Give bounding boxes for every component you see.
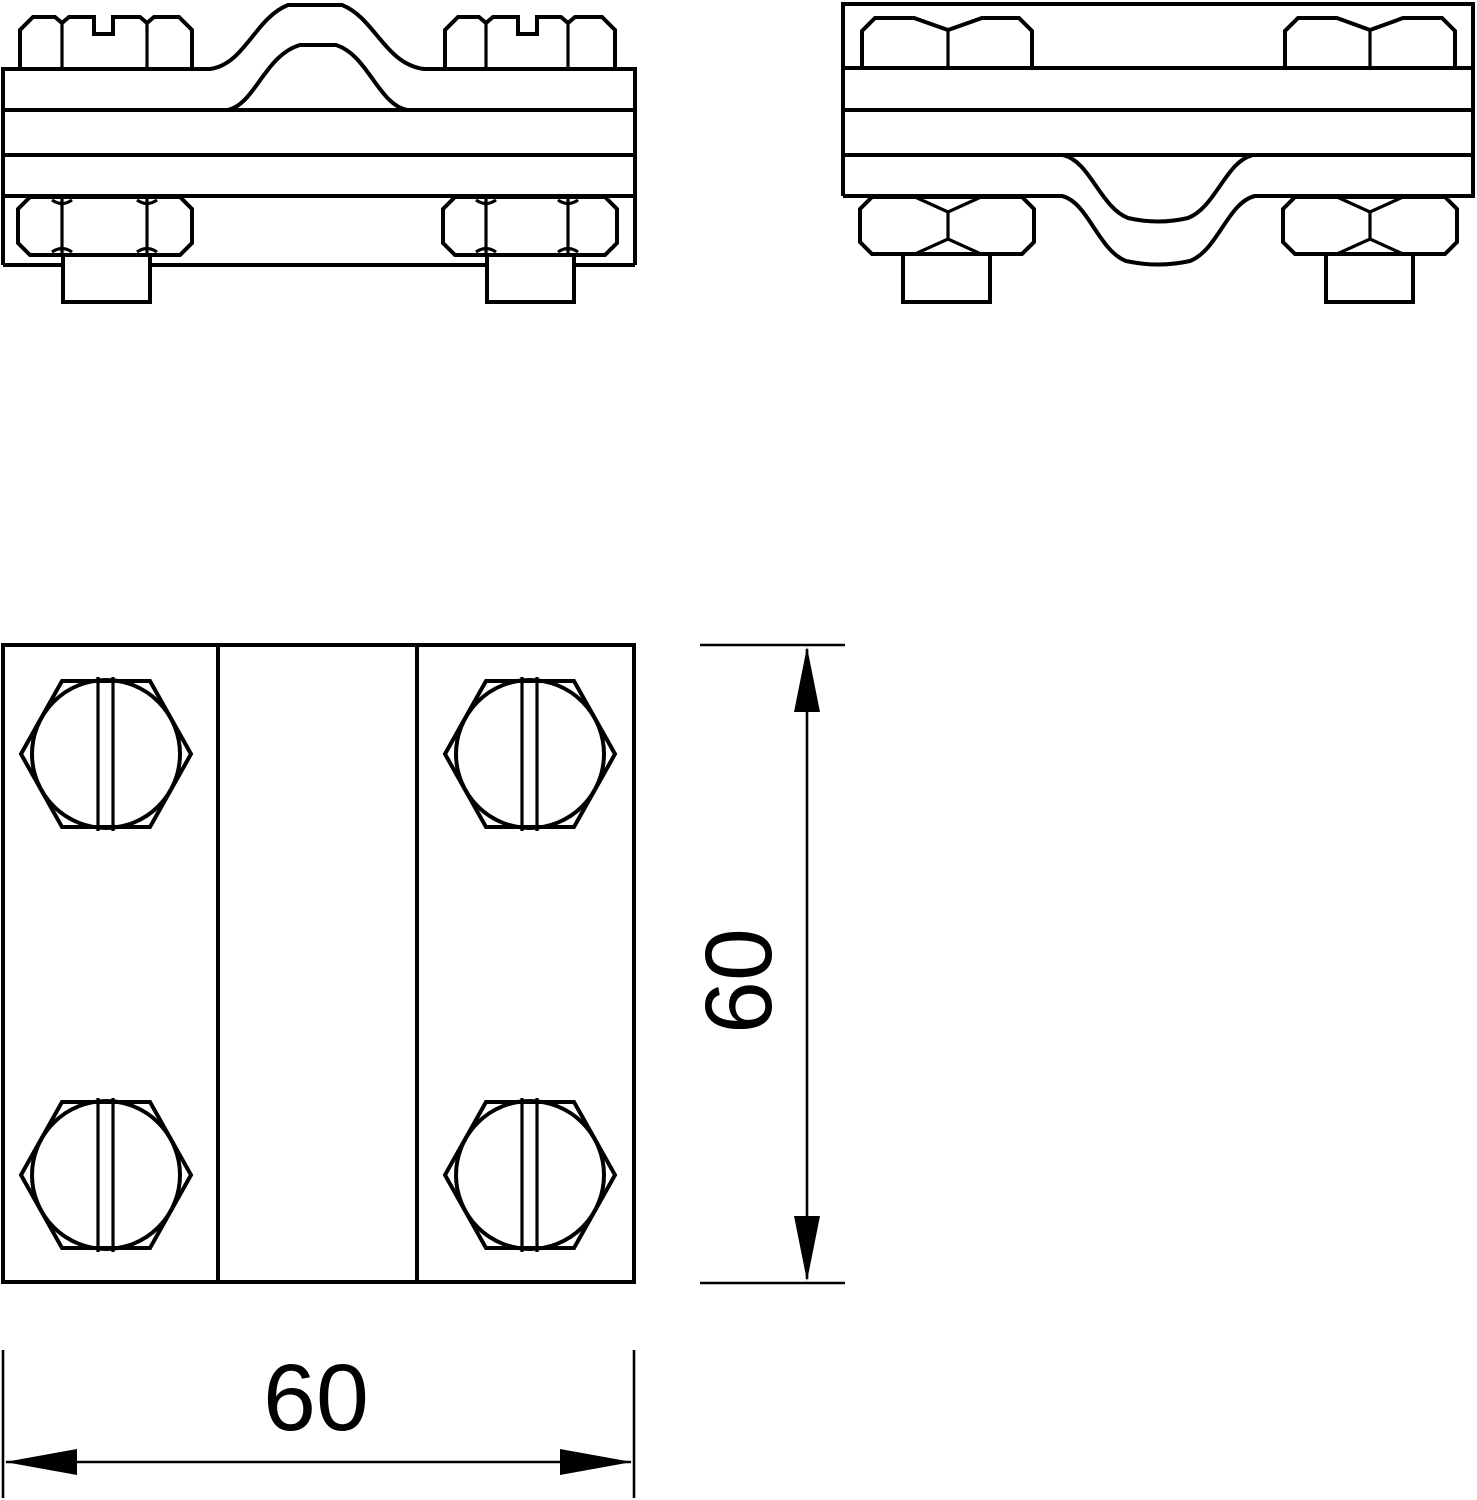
head-circle (456, 680, 604, 828)
hex-head-face-lines (486, 23, 568, 69)
bolt-shank (903, 254, 990, 302)
top-view (3, 645, 634, 1282)
top-view-bolt-bottom-right (445, 1098, 615, 1252)
head-circle (32, 1101, 180, 1249)
bolt-shank (487, 255, 574, 302)
screw-slot (522, 677, 537, 831)
hex-nut-face-lines (52, 197, 157, 255)
hex-nut-face-lines (476, 197, 578, 255)
top-view-bolt-top-left (21, 677, 191, 831)
screw-slot (522, 1098, 537, 1252)
bolt-shank (1326, 254, 1413, 302)
hex-nut-corner-lines (915, 197, 981, 254)
hex-nut-corner-lines (1337, 197, 1403, 254)
width-dimension-label: 60 (263, 1345, 369, 1451)
drawing-canvas: 60 60 (0, 0, 1477, 1500)
side-body-outline (843, 4, 1473, 265)
slotted-hex-bolt-head (445, 17, 615, 69)
hexagon (445, 1102, 615, 1248)
hexagon (445, 681, 615, 827)
slotted-hex-bolt-head (20, 17, 192, 69)
hex-head-face-lines (62, 23, 147, 69)
front-plate-joint-lines (3, 110, 635, 196)
top-view-bolt-top-right (445, 677, 615, 831)
hex-nut (18, 197, 192, 255)
top-view-bolt-bottom-left (21, 1098, 191, 1252)
arrow-left-icon (5, 1449, 77, 1475)
width-dimension: 60 (3, 1345, 634, 1498)
screw-slot (98, 1098, 113, 1252)
side-left-bolt (860, 18, 1034, 302)
bolt-shank (63, 255, 150, 302)
head-circle (32, 680, 180, 828)
hexagon (21, 1102, 191, 1248)
arrow-down-icon (794, 1216, 820, 1281)
front-left-bolt (18, 17, 192, 302)
arrow-right-icon (560, 1449, 632, 1475)
front-hump-inner-edge (228, 45, 407, 110)
head-circle (456, 1101, 604, 1249)
hex-nut (443, 197, 617, 255)
technical-drawing: 60 60 (0, 0, 1477, 1500)
height-dimension: 60 (686, 645, 845, 1283)
screw-slot (98, 677, 113, 831)
side-view (843, 4, 1473, 302)
channel-lines (218, 645, 417, 1282)
side-right-bolt (1283, 18, 1457, 302)
front-view (3, 5, 635, 302)
side-trough-inner-edge (1063, 155, 1253, 222)
front-right-bolt (443, 17, 617, 302)
height-dimension-label: 60 (686, 928, 792, 1034)
side-plate-joint-lines (843, 68, 1473, 155)
arrow-up-icon (794, 647, 820, 712)
hexagon (21, 681, 191, 827)
